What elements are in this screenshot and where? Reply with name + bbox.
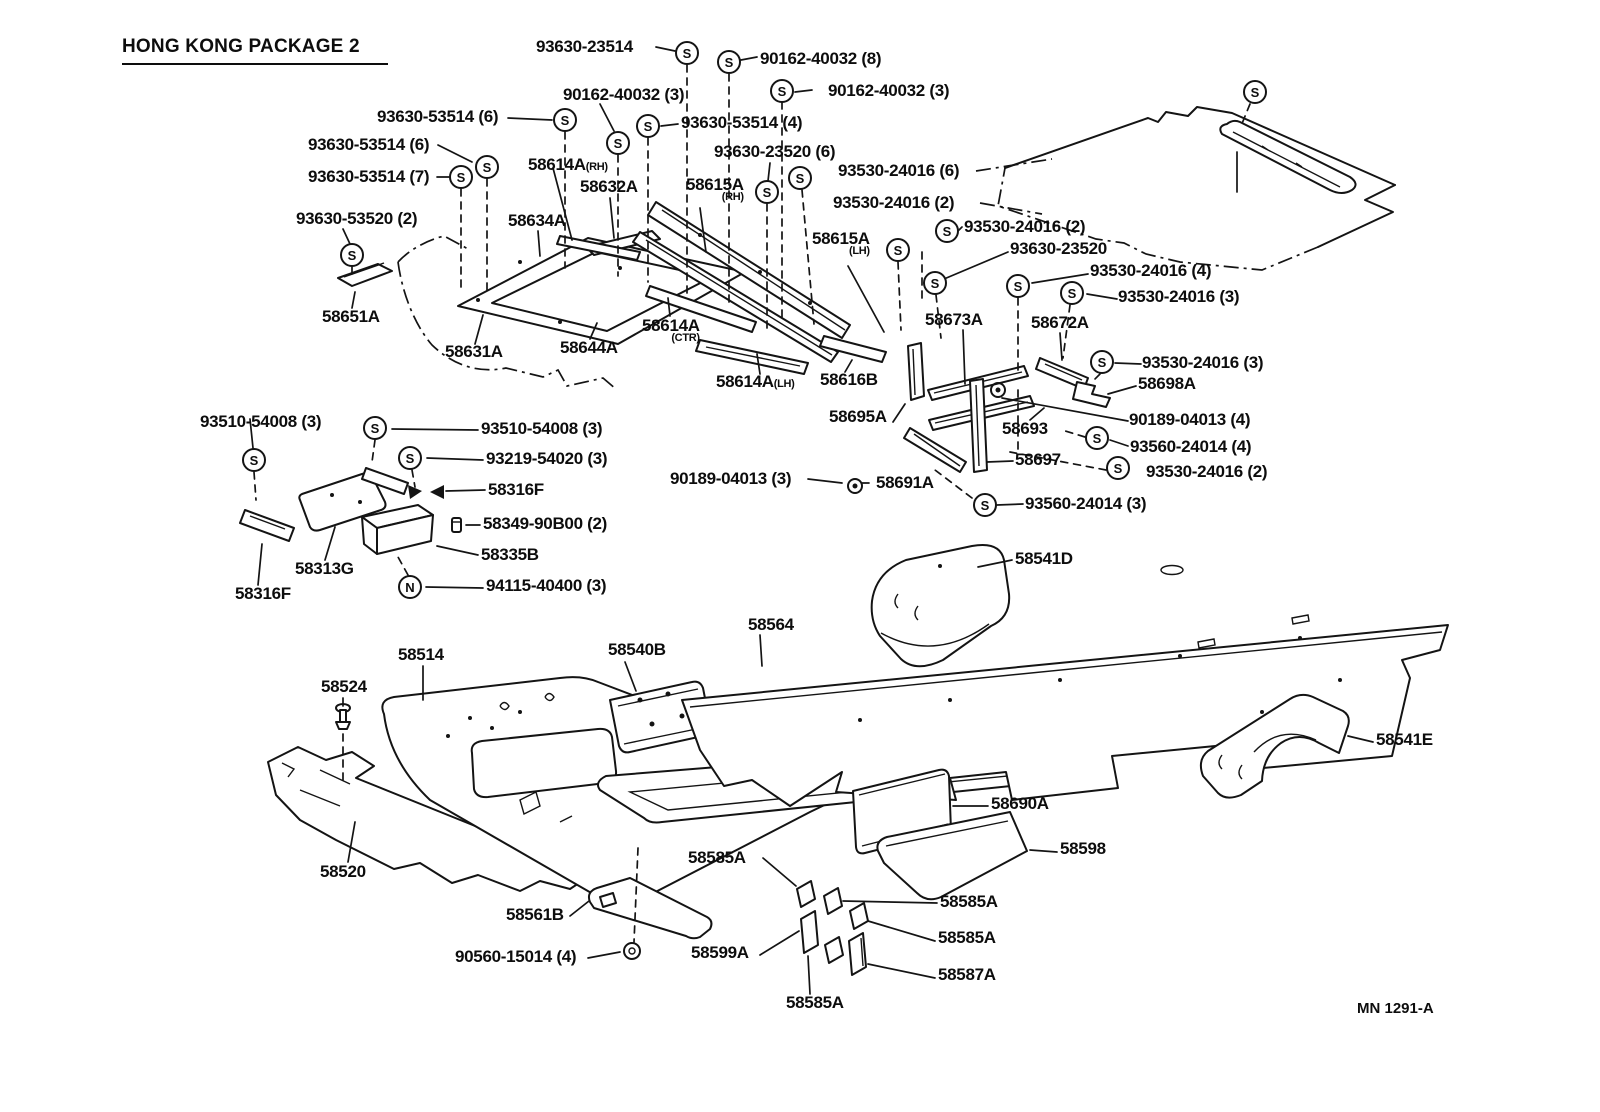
part-label-93530-24016-3-: 93530-24016 (3) bbox=[1142, 354, 1263, 371]
screw-symbol: S bbox=[935, 219, 959, 243]
part-label-58697: 58697 bbox=[1015, 451, 1061, 468]
screw-symbol: S bbox=[340, 243, 364, 267]
part-label-58316f: 58316F bbox=[235, 585, 291, 602]
part-label-93630-23520: 93630-23520 bbox=[1010, 240, 1107, 257]
part-label-58313g: 58313G bbox=[295, 560, 354, 577]
part-label-93630-53514-7-: 93630-53514 (7) bbox=[308, 168, 429, 185]
screw-symbol: S bbox=[475, 155, 499, 179]
part-label-93630-23514: 93630-23514 bbox=[536, 38, 633, 55]
screw-symbol: S bbox=[1090, 350, 1114, 374]
part-label-93630-53520-2-: 93630-53520 (2) bbox=[296, 210, 417, 227]
screw-symbol: S bbox=[675, 41, 699, 65]
screw-symbol: S bbox=[788, 166, 812, 190]
part-label-58616b: 58616B bbox=[820, 371, 878, 388]
screw-symbol: S bbox=[242, 448, 266, 472]
screw-symbol: S bbox=[886, 238, 910, 262]
part-label-58520: 58520 bbox=[320, 863, 366, 880]
screw-symbol: S bbox=[449, 165, 473, 189]
part-label-58587a: 58587A bbox=[938, 966, 996, 983]
part-label-93630-53514-6-: 93630-53514 (6) bbox=[308, 136, 429, 153]
part-label-90560-15014-4-: 90560-15014 (4) bbox=[455, 948, 576, 965]
part-label-58585a: 58585A bbox=[938, 929, 996, 946]
part-label-58672a: 58672A bbox=[1031, 314, 1089, 331]
part-label-58349-90b00-2-: 58349-90B00 (2) bbox=[483, 515, 607, 532]
screw-symbol: S bbox=[553, 108, 577, 132]
part-label-94115-40400-3-: 94115-40400 (3) bbox=[486, 577, 606, 594]
part-label-93530-24016-6-: 93530-24016 (6) bbox=[838, 162, 959, 179]
part-label-93510-54008-3-: 93510-54008 (3) bbox=[481, 420, 602, 437]
part-label-58541d: 58541D bbox=[1015, 550, 1073, 567]
screw-symbol: S bbox=[363, 416, 387, 440]
part-label-93630-23520-6-: 93630-23520 (6) bbox=[714, 143, 835, 160]
nut-symbol: N bbox=[398, 575, 422, 599]
part-label-58614a: 58614A(LH) bbox=[716, 373, 795, 390]
part-label-58673a: 58673A bbox=[925, 311, 983, 328]
screw-symbol: S bbox=[973, 493, 997, 517]
screw-symbol: S bbox=[717, 50, 741, 74]
part-label-58599a: 58599A bbox=[691, 944, 749, 961]
part-label-58691a: 58691A bbox=[876, 474, 934, 491]
screw-symbol: S bbox=[1106, 456, 1130, 480]
part-label-90189-04013-4-: 90189-04013 (4) bbox=[1129, 411, 1250, 428]
screw-symbol: S bbox=[1006, 274, 1030, 298]
part-label-58564: 58564 bbox=[748, 616, 794, 633]
part-label-58693: 58693 bbox=[1002, 420, 1048, 437]
part-label-58585a: 58585A bbox=[786, 994, 844, 1011]
part-label-93630-53514-6-: 93630-53514 (6) bbox=[377, 108, 498, 125]
part-label-93560-24014-4-: 93560-24014 (4) bbox=[1130, 438, 1251, 455]
part-label-58540b: 58540B bbox=[608, 641, 666, 658]
part-label-58634a: 58634A bbox=[508, 212, 566, 229]
screw-symbol: S bbox=[398, 446, 422, 470]
part-label-90162-40032-8-: 90162-40032 (8) bbox=[760, 50, 881, 67]
part-label-58541e: 58541E bbox=[1376, 731, 1433, 748]
parts-diagram-page: HONG KONG PACKAGE 2 MN 1291-A 93630-2351… bbox=[0, 0, 1600, 1112]
screw-symbol: S bbox=[1085, 426, 1109, 450]
part-label-58615a: 58615A(LH) bbox=[812, 230, 870, 257]
screw-symbol: S bbox=[770, 79, 794, 103]
screw-symbol: S bbox=[1243, 80, 1267, 104]
screw-symbol: S bbox=[606, 131, 630, 155]
part-label-90162-40032-3-: 90162-40032 (3) bbox=[563, 86, 684, 103]
part-label-58514: 58514 bbox=[398, 646, 444, 663]
part-label-58695a: 58695A bbox=[829, 408, 887, 425]
part-label-58644a: 58644A bbox=[560, 339, 618, 356]
part-label-58615a: 58615A(RH) bbox=[686, 176, 744, 203]
part-label-93560-24014-3-: 93560-24014 (3) bbox=[1025, 495, 1146, 512]
part-label-58598: 58598 bbox=[1060, 840, 1106, 857]
screw-symbol: S bbox=[636, 114, 660, 138]
part-label-58690a: 58690A bbox=[991, 795, 1049, 812]
part-label-58632a: 58632A bbox=[580, 178, 638, 195]
part-label-90189-04013-3-: 90189-04013 (3) bbox=[670, 470, 791, 487]
part-label-93530-24016-2-: 93530-24016 (2) bbox=[833, 194, 954, 211]
part-label-93530-24016-2-: 93530-24016 (2) bbox=[1146, 463, 1267, 480]
part-label-93630-53514-4-: 93630-53514 (4) bbox=[681, 114, 802, 131]
part-label-58614a: 58614A(CTR) bbox=[642, 317, 700, 344]
part-label-93219-54020-3-: 93219-54020 (3) bbox=[486, 450, 607, 467]
screw-symbol: S bbox=[1060, 281, 1084, 305]
part-label-93530-24016-3-: 93530-24016 (3) bbox=[1118, 288, 1239, 305]
part-label-58335b: 58335B bbox=[481, 546, 539, 563]
part-label-93510-54008-3-: 93510-54008 (3) bbox=[200, 413, 321, 430]
part-label-58585a: 58585A bbox=[688, 849, 746, 866]
part-label-58631a: 58631A bbox=[445, 343, 503, 360]
part-label-58614a: 58614A(RH) bbox=[528, 156, 608, 173]
label-layer: 93630-2351490162-40032 (8)90162-40032 (3… bbox=[0, 0, 1600, 1112]
part-label-90162-40032-3-: 90162-40032 (3) bbox=[828, 82, 949, 99]
part-label-93530-24016-2-: 93530-24016 (2) bbox=[964, 218, 1085, 235]
part-label-58698a: 58698A bbox=[1138, 375, 1196, 392]
part-label-58316f: 58316F bbox=[488, 481, 544, 498]
part-label-58585a: 58585A bbox=[940, 893, 998, 910]
part-label-93530-24016-4-: 93530-24016 (4) bbox=[1090, 262, 1211, 279]
screw-symbol: S bbox=[755, 180, 779, 204]
part-label-58561b: 58561B bbox=[506, 906, 564, 923]
part-label-58524: 58524 bbox=[321, 678, 367, 695]
part-label-58651a: 58651A bbox=[322, 308, 380, 325]
screw-symbol: S bbox=[923, 271, 947, 295]
